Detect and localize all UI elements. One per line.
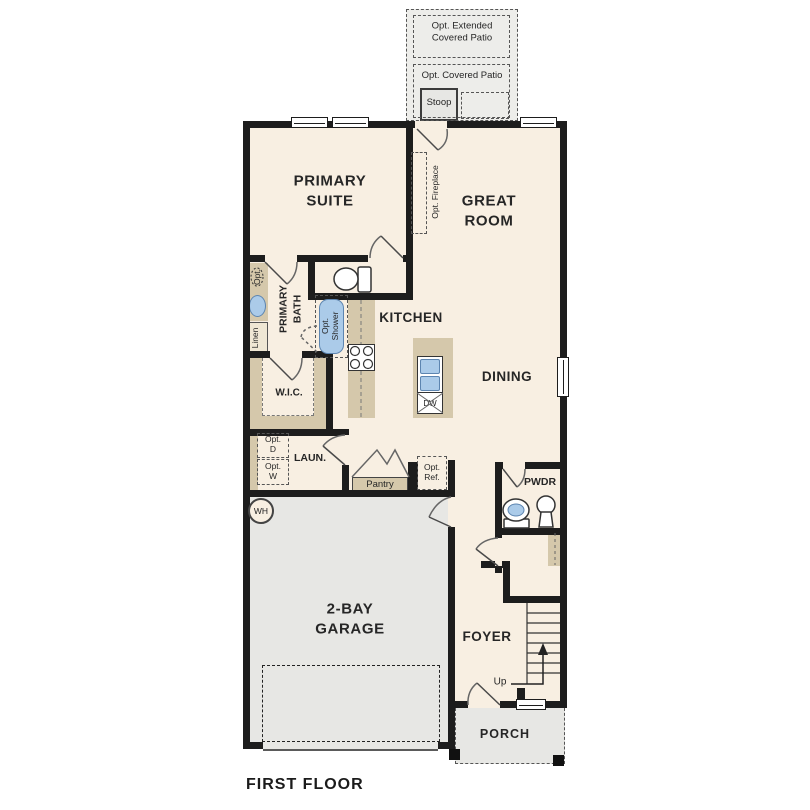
window	[516, 699, 546, 710]
opt-fireplace-label: Opt. Fireplace	[431, 165, 441, 218]
door-opening	[270, 351, 302, 358]
dishwasher-label: DW	[423, 399, 436, 408]
opt-fireplace-outline	[411, 152, 427, 234]
opt-sink-label: Opt.	[253, 269, 263, 285]
dining-label: DINING	[482, 368, 532, 386]
primary-suite-label: PRIMARY SUITE	[294, 172, 367, 211]
dishwasher-box: DW	[417, 392, 443, 414]
garage-label: 2-BAY GARAGE	[315, 600, 384, 639]
door-opening	[265, 255, 297, 262]
opt-dryer-label: Opt. D	[265, 435, 281, 455]
island-sink-basin-top	[420, 359, 440, 374]
kitchen-label: KITCHEN	[379, 309, 443, 327]
porch-label: PORCH	[480, 726, 530, 742]
window	[557, 357, 569, 397]
wall	[495, 528, 567, 535]
wic-label: W.I.C.	[275, 387, 302, 400]
floor-plan: DW WH	[0, 0, 810, 810]
great-room-label: GREAT ROOM	[462, 192, 516, 231]
pantry-label: Pantry	[366, 479, 393, 491]
island-sink-basin-bottom	[420, 376, 440, 391]
wall	[503, 596, 567, 603]
water-heater: WH	[248, 498, 274, 524]
wall	[326, 351, 333, 436]
garage-door-opening	[263, 742, 438, 751]
window	[520, 117, 557, 128]
opt-extended-patio-label: Opt. Extended Covered Patio	[432, 21, 493, 46]
door-opening	[415, 121, 447, 128]
range-cooktop	[348, 344, 375, 371]
porch-post	[449, 749, 460, 760]
stoop-label: Stoop	[427, 97, 452, 109]
up-label: Up	[494, 676, 507, 689]
opt-washer-label: Opt. W	[265, 462, 281, 482]
foyer-label: FOYER	[462, 628, 511, 646]
door-opening	[495, 538, 502, 566]
laundry-label: LAUN.	[294, 452, 326, 466]
pwdr-label: PWDR	[524, 476, 556, 490]
opt-shower-label: Opt. Shower	[321, 312, 341, 341]
vanity-sink	[249, 295, 266, 317]
door-opening	[368, 255, 403, 262]
opt-covered-patio-label: Opt. Covered Patio	[422, 70, 503, 82]
door-opening	[503, 462, 525, 469]
wall	[243, 490, 455, 497]
window	[332, 117, 369, 128]
garage-door-setback	[262, 665, 440, 742]
door-opening	[448, 497, 455, 527]
water-heater-label: WH	[254, 506, 268, 516]
porch-post	[553, 755, 564, 766]
primary-bath-label: PRIMARY BATH	[277, 285, 304, 333]
linen-label: Linen	[251, 328, 261, 349]
door-opening	[342, 435, 349, 465]
window	[291, 117, 328, 128]
wall	[560, 121, 567, 708]
plan-title: FIRST FLOOR	[246, 776, 364, 794]
door-opening	[468, 701, 500, 708]
opt-ref-label: Opt. Ref.	[424, 463, 440, 483]
stoop-side-outline	[461, 92, 509, 119]
